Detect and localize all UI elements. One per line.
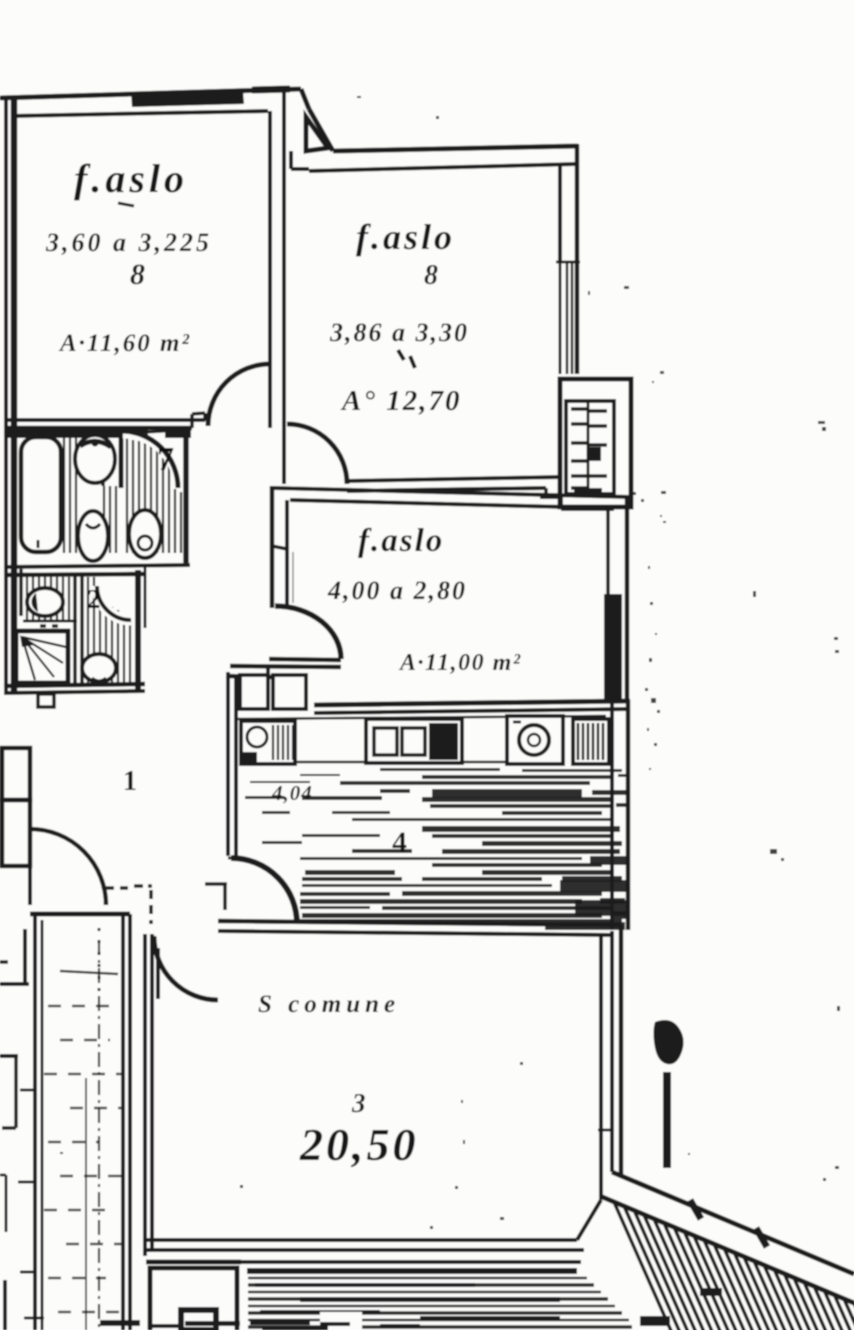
svg-text:A·11,60 m²: A·11,60 m²	[58, 330, 191, 357]
svg-text:4,00 a 2,80: 4,00 a 2,80	[327, 576, 467, 605]
svg-text:A·11,00 m²: A·11,00 m²	[398, 650, 522, 676]
svg-text:20,50: 20,50	[299, 1119, 419, 1170]
svg-text:1: 1	[123, 766, 137, 797]
svg-text:f.aslo: f.aslo	[356, 217, 455, 257]
svg-text:A° 12,70: A° 12,70	[340, 385, 461, 417]
svg-text:8: 8	[130, 258, 145, 291]
svg-text:f.aslo: f.aslo	[74, 156, 188, 201]
svg-text:7: 7	[157, 441, 174, 478]
svg-text:8: 8	[424, 260, 438, 291]
svg-text:f.aslo: f.aslo	[358, 523, 444, 559]
svg-text:3,60 a 3,225: 3,60 a 3,225	[45, 228, 212, 257]
svg-text:S comune: S comune	[258, 991, 400, 1018]
svg-text:3: 3	[351, 1088, 366, 1118]
svg-text:2: 2	[87, 584, 101, 614]
svg-text:4: 4	[392, 826, 407, 859]
svg-text:4,04: 4,04	[271, 781, 313, 805]
svg-text:3,86 a 3,30: 3,86 a 3,30	[329, 318, 469, 347]
